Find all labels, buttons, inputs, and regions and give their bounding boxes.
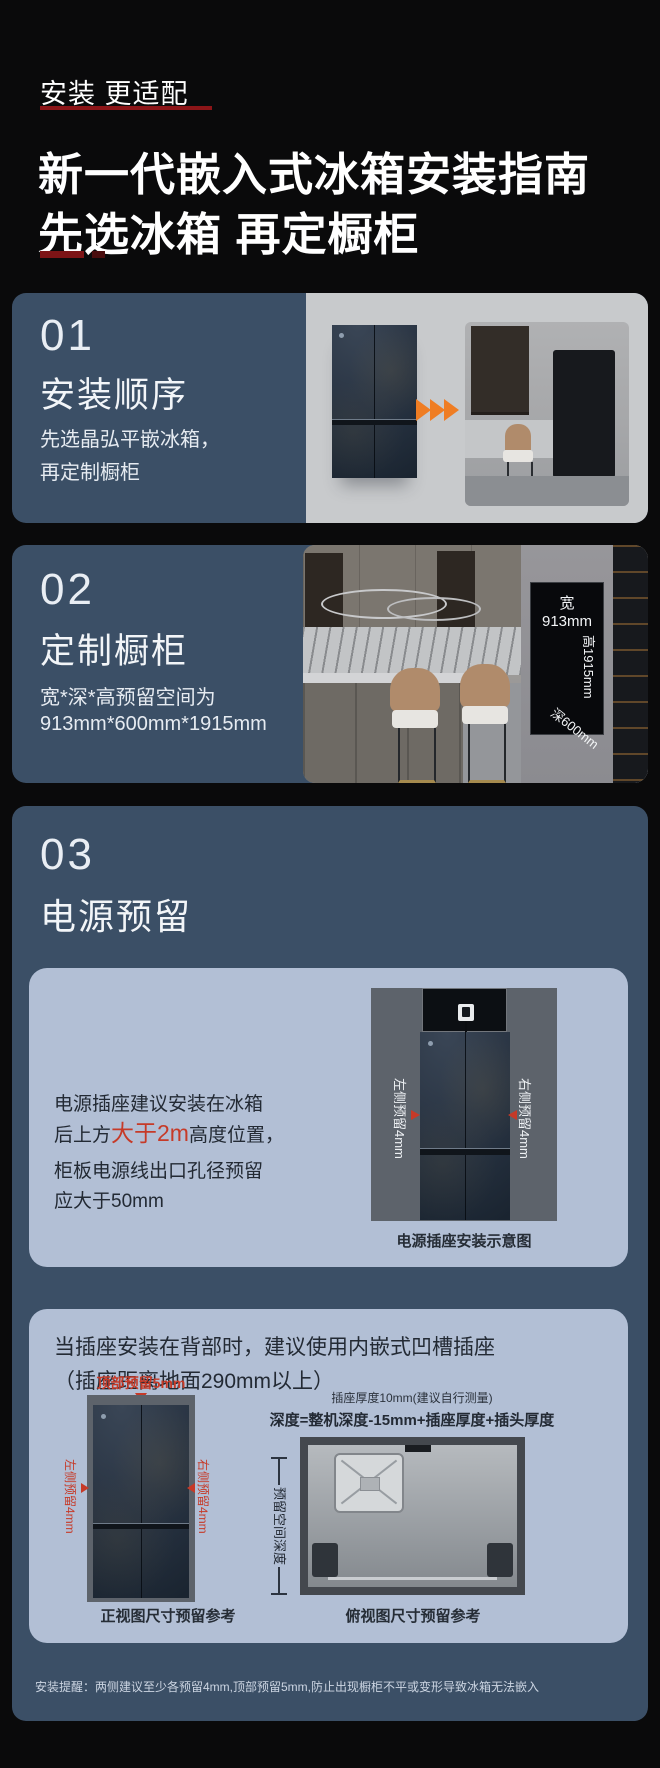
fridge-door-seam bbox=[374, 325, 375, 478]
custom-cabinet-photo: 宽913mm 高1915mm 深600mm bbox=[303, 545, 648, 783]
right-clearance-label: 右侧预留4mm bbox=[195, 1459, 212, 1534]
section-body-line: 再定制橱柜 bbox=[40, 456, 140, 485]
fridge-image bbox=[420, 1032, 510, 1220]
arrow-left-icon bbox=[187, 1483, 195, 1493]
display-cabinet bbox=[613, 545, 648, 783]
title-accent-dash bbox=[92, 251, 105, 258]
left-clearance-label: 左侧预留4mm bbox=[62, 1459, 79, 1534]
fridge-door-seam bbox=[141, 1405, 142, 1598]
chevron-right-icon bbox=[444, 399, 459, 421]
text-segment: 后上方 bbox=[54, 1125, 111, 1146]
fridge-install-guide-page: 安装 更适配 新一代嵌入式冰箱安装指南 先选冰箱 再定橱柜 01 安装顺序 先选… bbox=[0, 0, 660, 1768]
top-view-diagram bbox=[300, 1437, 525, 1595]
plug-icon bbox=[462, 1007, 470, 1017]
highlight-2m-text: 大于2m bbox=[111, 1120, 189, 1146]
section-03-card: 03 电源预留 电源插座建议安装在冰箱 后上方大于2m高度位置， 柜板电源线出口… bbox=[12, 806, 648, 1721]
brand-logo-dot bbox=[428, 1041, 433, 1046]
width-dimension-label: 宽913mm bbox=[535, 592, 599, 630]
wine-shelf bbox=[305, 553, 343, 627]
install-reminder-note: 安装提醒：两侧建议至少各预留4mm,顶部预留5mm,防止出现橱柜不平或变形导致冰… bbox=[35, 1678, 539, 1695]
bar-chair bbox=[390, 668, 440, 712]
eyebrow-underline bbox=[40, 106, 212, 110]
socket-thickness-note: 插座厚度10mm(建议自行测量) bbox=[292, 1389, 532, 1406]
panel-heading: 当插座安装在背部时，建议使用内嵌式凹槽插座 bbox=[54, 1331, 495, 1361]
dark-wardrobe bbox=[553, 350, 615, 478]
section-title: 安装顺序 bbox=[40, 367, 188, 418]
fridge-handle-bar bbox=[93, 1523, 189, 1529]
plate-center bbox=[360, 1477, 380, 1491]
section-body-line: 宽*深*高预留空间为 bbox=[40, 681, 216, 710]
arrow-left-icon bbox=[508, 1110, 517, 1120]
arrow-right-icon bbox=[81, 1483, 89, 1493]
pendant-light bbox=[387, 597, 481, 621]
section-number: 02 bbox=[40, 565, 95, 615]
arrow-right-icon bbox=[411, 1110, 420, 1120]
section-body-line: 先选晶弘平嵌冰箱， bbox=[40, 423, 220, 452]
cabinet-interior bbox=[308, 1445, 517, 1587]
fridge-image bbox=[93, 1405, 189, 1598]
bar-chair bbox=[505, 424, 531, 450]
fridge-handle-bar bbox=[420, 1148, 510, 1155]
diagram-caption: 电源插座安装示意图 bbox=[371, 1230, 557, 1251]
panel-text-line: 后上方大于2m高度位置， bbox=[54, 1114, 284, 1148]
panel-text-line: 柜板电源线出口孔径预留 bbox=[54, 1156, 263, 1183]
top-clearance-label: 顶部预留5mm bbox=[61, 1373, 221, 1393]
chevron-right-icon bbox=[416, 399, 431, 421]
section-02-card: 02 定制橱柜 宽*深*高预留空间为 913mm*600mm*1915mm 宽9… bbox=[12, 545, 648, 783]
dimension-tick bbox=[271, 1593, 287, 1595]
brand-logo-dot bbox=[339, 333, 344, 338]
section-body-line: 913mm*600mm*1915mm bbox=[40, 713, 267, 736]
socket-position-panel: 电源插座建议安装在冰箱 后上方大于2m高度位置， 柜板电源线出口孔径预留 应大于… bbox=[29, 968, 628, 1267]
chevron-right-icon bbox=[430, 399, 445, 421]
cabinet-kitchen-photo bbox=[465, 322, 629, 506]
recessed-socket-icon bbox=[405, 1445, 431, 1452]
section-title: 定制橱柜 bbox=[40, 623, 188, 674]
panel-text-line: 电源插座建议安装在冰箱 bbox=[54, 1089, 263, 1116]
forward-arrows-icon bbox=[416, 399, 458, 421]
page-title-line1: 新一代嵌入式冰箱安装指南 bbox=[38, 138, 590, 203]
bar-chair-seat bbox=[392, 710, 438, 728]
bar-chair bbox=[460, 664, 510, 708]
height-dimension-label: 高1915mm bbox=[580, 635, 599, 699]
section-title: 电源预留 bbox=[40, 888, 192, 940]
text-segment: 高度位置， bbox=[189, 1125, 284, 1146]
wine-cabinet bbox=[471, 326, 529, 415]
bar-chair-seat bbox=[503, 450, 533, 462]
compressor-plate bbox=[334, 1453, 404, 1513]
floor bbox=[465, 476, 629, 506]
left-clearance-label: 左侧预留4mm bbox=[391, 1078, 410, 1159]
fridge-handle-bar bbox=[332, 419, 417, 425]
reserved-depth-label: 预留空间深度 bbox=[270, 1485, 291, 1567]
right-clearance-label: 右侧预留4mm bbox=[516, 1078, 535, 1159]
bar-chair-legs bbox=[468, 724, 506, 783]
socket-install-diagram: 左侧预留4mm 右侧预留4mm bbox=[371, 988, 557, 1221]
recessed-socket-panel: 当插座安装在背部时，建议使用内嵌式凹槽插座 （插座距离地面290mm以上） 顶部… bbox=[29, 1309, 628, 1643]
panel-text-line: 应大于50mm bbox=[54, 1186, 164, 1213]
hinge-block bbox=[312, 1543, 338, 1577]
power-cord bbox=[465, 1021, 467, 1032]
front-view-caption: 正视图尺寸预留参考 bbox=[75, 1605, 261, 1626]
hinge-block bbox=[487, 1543, 513, 1577]
top-view-caption: 俯视图尺寸预留参考 bbox=[320, 1605, 506, 1626]
brand-logo-dot bbox=[101, 1414, 106, 1419]
dimension-line-icon bbox=[278, 1459, 280, 1487]
title-accent-dash bbox=[40, 251, 84, 258]
door-front-line bbox=[328, 1577, 497, 1580]
bar-chair-legs bbox=[398, 728, 436, 783]
fridge-image bbox=[332, 325, 417, 478]
install-order-illustration bbox=[306, 293, 648, 523]
power-socket-icon bbox=[458, 1004, 474, 1021]
front-view-diagram bbox=[87, 1395, 195, 1602]
bar-chair-seat bbox=[462, 706, 508, 724]
depth-formula: 深度=整机深度-15mm+插座厚度+插头厚度 bbox=[257, 1409, 567, 1430]
dimension-tick bbox=[271, 1457, 287, 1459]
section-number: 01 bbox=[40, 311, 95, 361]
section-number: 03 bbox=[40, 830, 95, 880]
section-01-card: 01 安装顺序 先选晶弘平嵌冰箱， 再定制橱柜 bbox=[12, 293, 648, 523]
fridge-door-seam bbox=[465, 1032, 466, 1220]
